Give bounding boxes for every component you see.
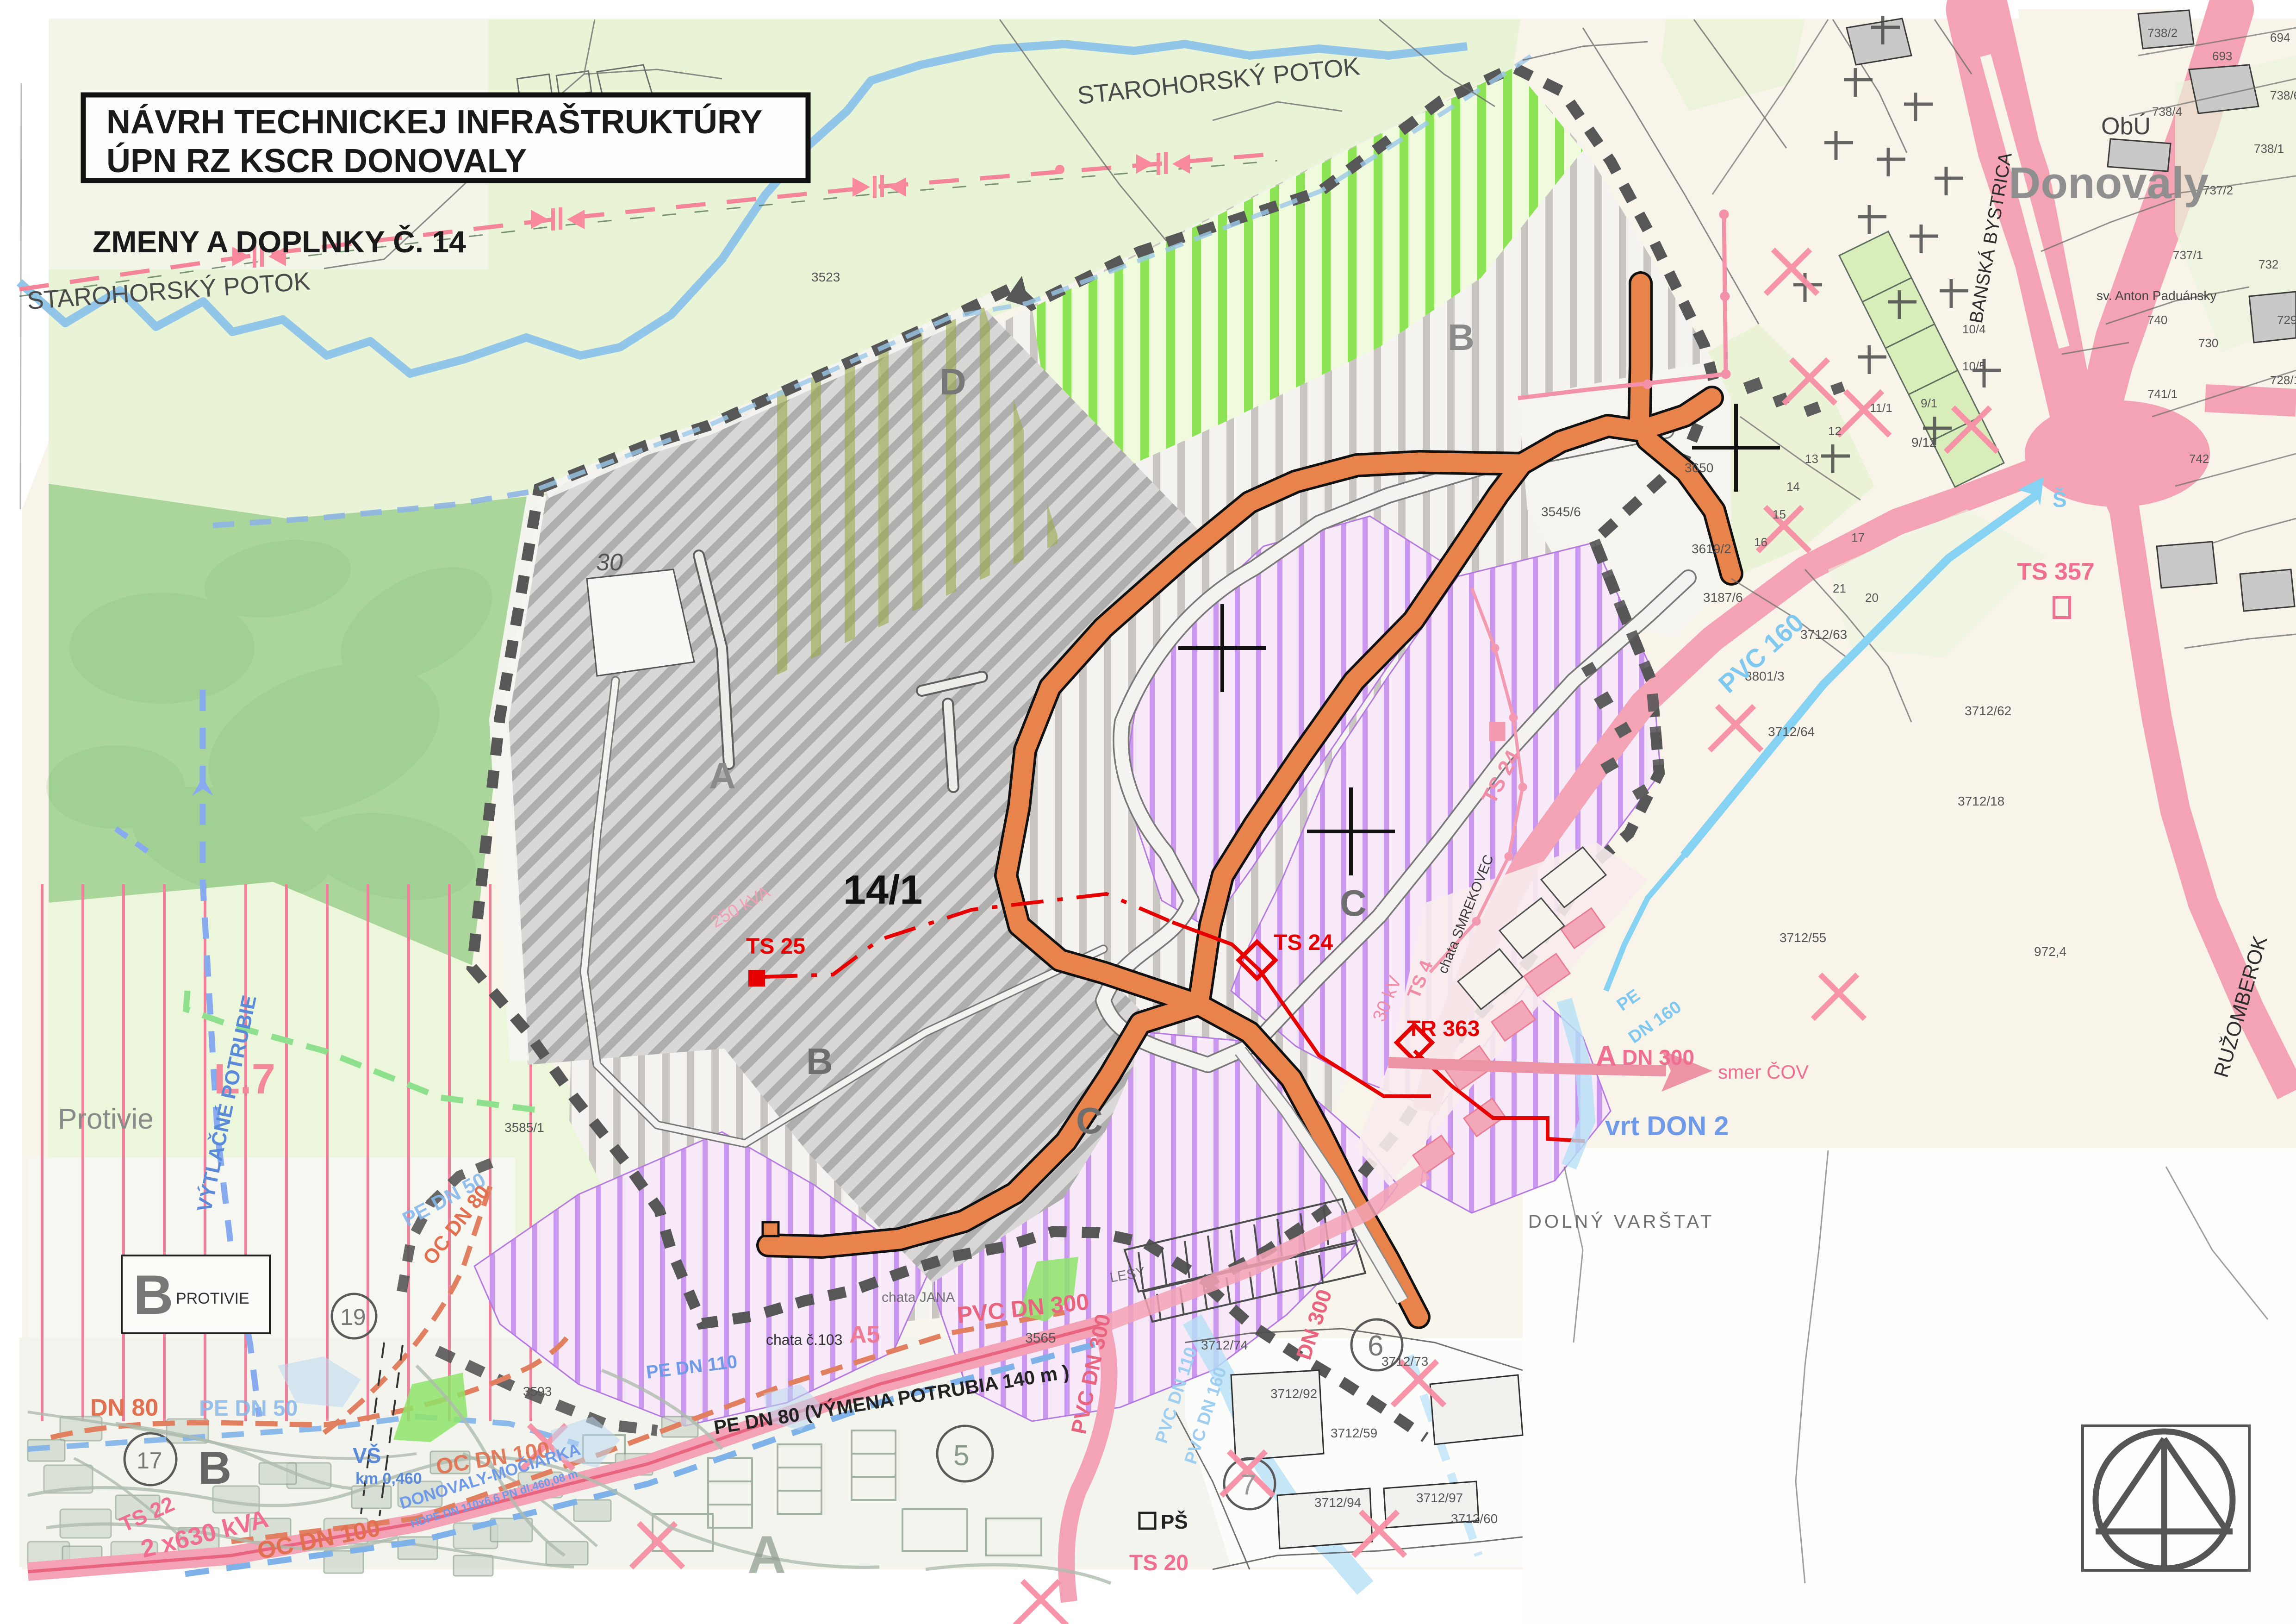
- svg-text:Š: Š: [2053, 487, 2067, 512]
- svg-text:A: A: [709, 755, 736, 796]
- svg-text:ObÚ: ObÚ: [2101, 113, 2151, 140]
- svg-text:16: 16: [1754, 535, 1767, 549]
- svg-text:3712/92: 3712/92: [1270, 1387, 1317, 1401]
- svg-text:3565: 3565: [1025, 1330, 1056, 1346]
- svg-text:PROTIVIE: PROTIVIE: [176, 1290, 249, 1307]
- svg-text:Donovaly: Donovaly: [2009, 158, 2209, 208]
- svg-text:vrt DON 2: vrt DON 2: [1605, 1111, 1729, 1141]
- svg-text:730: 730: [2198, 336, 2218, 350]
- svg-text:3712/62: 3712/62: [1965, 704, 2011, 718]
- svg-text:738/1: 738/1: [2254, 142, 2284, 156]
- svg-text:3712/63: 3712/63: [1800, 627, 1847, 642]
- svg-text:VŠ: VŠ: [353, 1443, 381, 1468]
- svg-text:TS 20: TS 20: [1129, 1551, 1188, 1575]
- svg-text:694: 694: [2270, 31, 2290, 44]
- svg-text:729: 729: [2277, 313, 2296, 327]
- svg-text:B: B: [198, 1442, 231, 1494]
- svg-text:9/1: 9/1: [1921, 396, 1937, 410]
- svg-text:10/5: 10/5: [1962, 359, 1986, 373]
- svg-text:A: A: [1596, 1040, 1617, 1072]
- svg-text:3712/18: 3712/18: [1958, 794, 2004, 808]
- svg-text:5: 5: [953, 1440, 969, 1472]
- svg-text:3712/64: 3712/64: [1768, 725, 1815, 739]
- svg-text:738/6: 738/6: [2270, 88, 2296, 102]
- svg-text:TS 357: TS 357: [2017, 558, 2095, 585]
- svg-text:ÚPN RZ KSCR DONOVALY: ÚPN RZ KSCR DONOVALY: [106, 142, 527, 180]
- svg-text:693: 693: [2212, 49, 2232, 63]
- svg-text:7: 7: [1240, 1469, 1256, 1501]
- svg-text:3712/94: 3712/94: [1314, 1495, 1361, 1510]
- svg-text:14/1: 14/1: [843, 867, 922, 912]
- svg-text:C: C: [1076, 1100, 1103, 1141]
- svg-text:smer ČOV: smer ČOV: [1718, 1061, 1809, 1083]
- svg-text:A: A: [747, 1525, 786, 1585]
- svg-text:3619/2: 3619/2: [1692, 542, 1731, 556]
- svg-text:3545/6: 3545/6: [1541, 505, 1581, 519]
- svg-text:17: 17: [1851, 531, 1865, 544]
- svg-text:19: 19: [340, 1304, 366, 1330]
- svg-text:3712/59: 3712/59: [1331, 1426, 1377, 1440]
- svg-text:NÁVRH TECHNICKEJ INFRAŠTRUKTÚR: NÁVRH TECHNICKEJ INFRAŠTRUKTÚRY: [106, 103, 762, 141]
- svg-text:738/2: 738/2: [2147, 26, 2178, 40]
- svg-text:km 0,460: km 0,460: [355, 1470, 422, 1487]
- svg-text:C: C: [1340, 882, 1367, 924]
- svg-text:20: 20: [1865, 591, 1879, 605]
- svg-text:B: B: [133, 1264, 174, 1326]
- svg-text:Protivie: Protivie: [58, 1103, 154, 1135]
- svg-text:DOLNÝ VARŠTAT: DOLNÝ VARŠTAT: [1528, 1211, 1715, 1232]
- svg-text:741/1: 741/1: [2147, 387, 2178, 401]
- svg-text:PE DN 50: PE DN 50: [199, 1396, 298, 1421]
- svg-text:3585/1: 3585/1: [504, 1120, 544, 1135]
- svg-text:30: 30: [596, 549, 623, 576]
- svg-text:3593: 3593: [523, 1384, 552, 1399]
- svg-text:D: D: [940, 361, 966, 402]
- svg-text:ZMENY A DOPLNKY Č. 14: ZMENY A DOPLNKY Č. 14: [93, 225, 466, 259]
- svg-text:TS 25: TS 25: [746, 934, 805, 959]
- svg-text:14: 14: [1786, 480, 1800, 493]
- svg-text:17: 17: [137, 1448, 162, 1474]
- svg-text:740: 740: [2147, 313, 2167, 327]
- svg-text:DN 80: DN 80: [90, 1394, 158, 1421]
- svg-text:chata č.103: chata č.103: [766, 1331, 842, 1348]
- svg-text:11/1: 11/1: [1870, 401, 1892, 415]
- svg-text:13: 13: [1805, 452, 1818, 466]
- svg-text:A5: A5: [849, 1321, 880, 1348]
- svg-text:TR 363: TR 363: [1407, 1017, 1480, 1041]
- svg-text:3712/97: 3712/97: [1416, 1491, 1463, 1505]
- svg-text:DN 300: DN 300: [1622, 1045, 1694, 1069]
- svg-text:15: 15: [1773, 507, 1786, 521]
- svg-text:3650: 3650: [1685, 461, 1713, 475]
- svg-text:21: 21: [1833, 581, 1846, 595]
- svg-text:3712/73: 3712/73: [1381, 1354, 1428, 1368]
- svg-text:742: 742: [2189, 452, 2209, 466]
- svg-text:3712/60: 3712/60: [1451, 1512, 1498, 1526]
- svg-text:9/12: 9/12: [1911, 435, 1937, 450]
- svg-text:B: B: [1448, 317, 1475, 358]
- svg-text:732: 732: [2259, 257, 2278, 271]
- svg-text:972,4: 972,4: [2034, 944, 2066, 959]
- svg-text:sv. Anton Paduánsky: sv. Anton Paduánsky: [2097, 288, 2216, 303]
- svg-text:TS 24: TS 24: [1274, 931, 1333, 955]
- svg-text:3712/55: 3712/55: [1780, 931, 1826, 945]
- svg-text:3187/6: 3187/6: [1703, 590, 1743, 605]
- svg-text:737/1: 737/1: [2173, 248, 2203, 262]
- svg-text:12: 12: [1828, 424, 1842, 438]
- svg-text:B: B: [806, 1041, 833, 1082]
- svg-text:3712/74: 3712/74: [1201, 1338, 1248, 1352]
- svg-text:3523: 3523: [811, 270, 840, 284]
- svg-text:chata JANA: chata JANA: [882, 1290, 955, 1305]
- svg-text:PŠ: PŠ: [1161, 1510, 1188, 1533]
